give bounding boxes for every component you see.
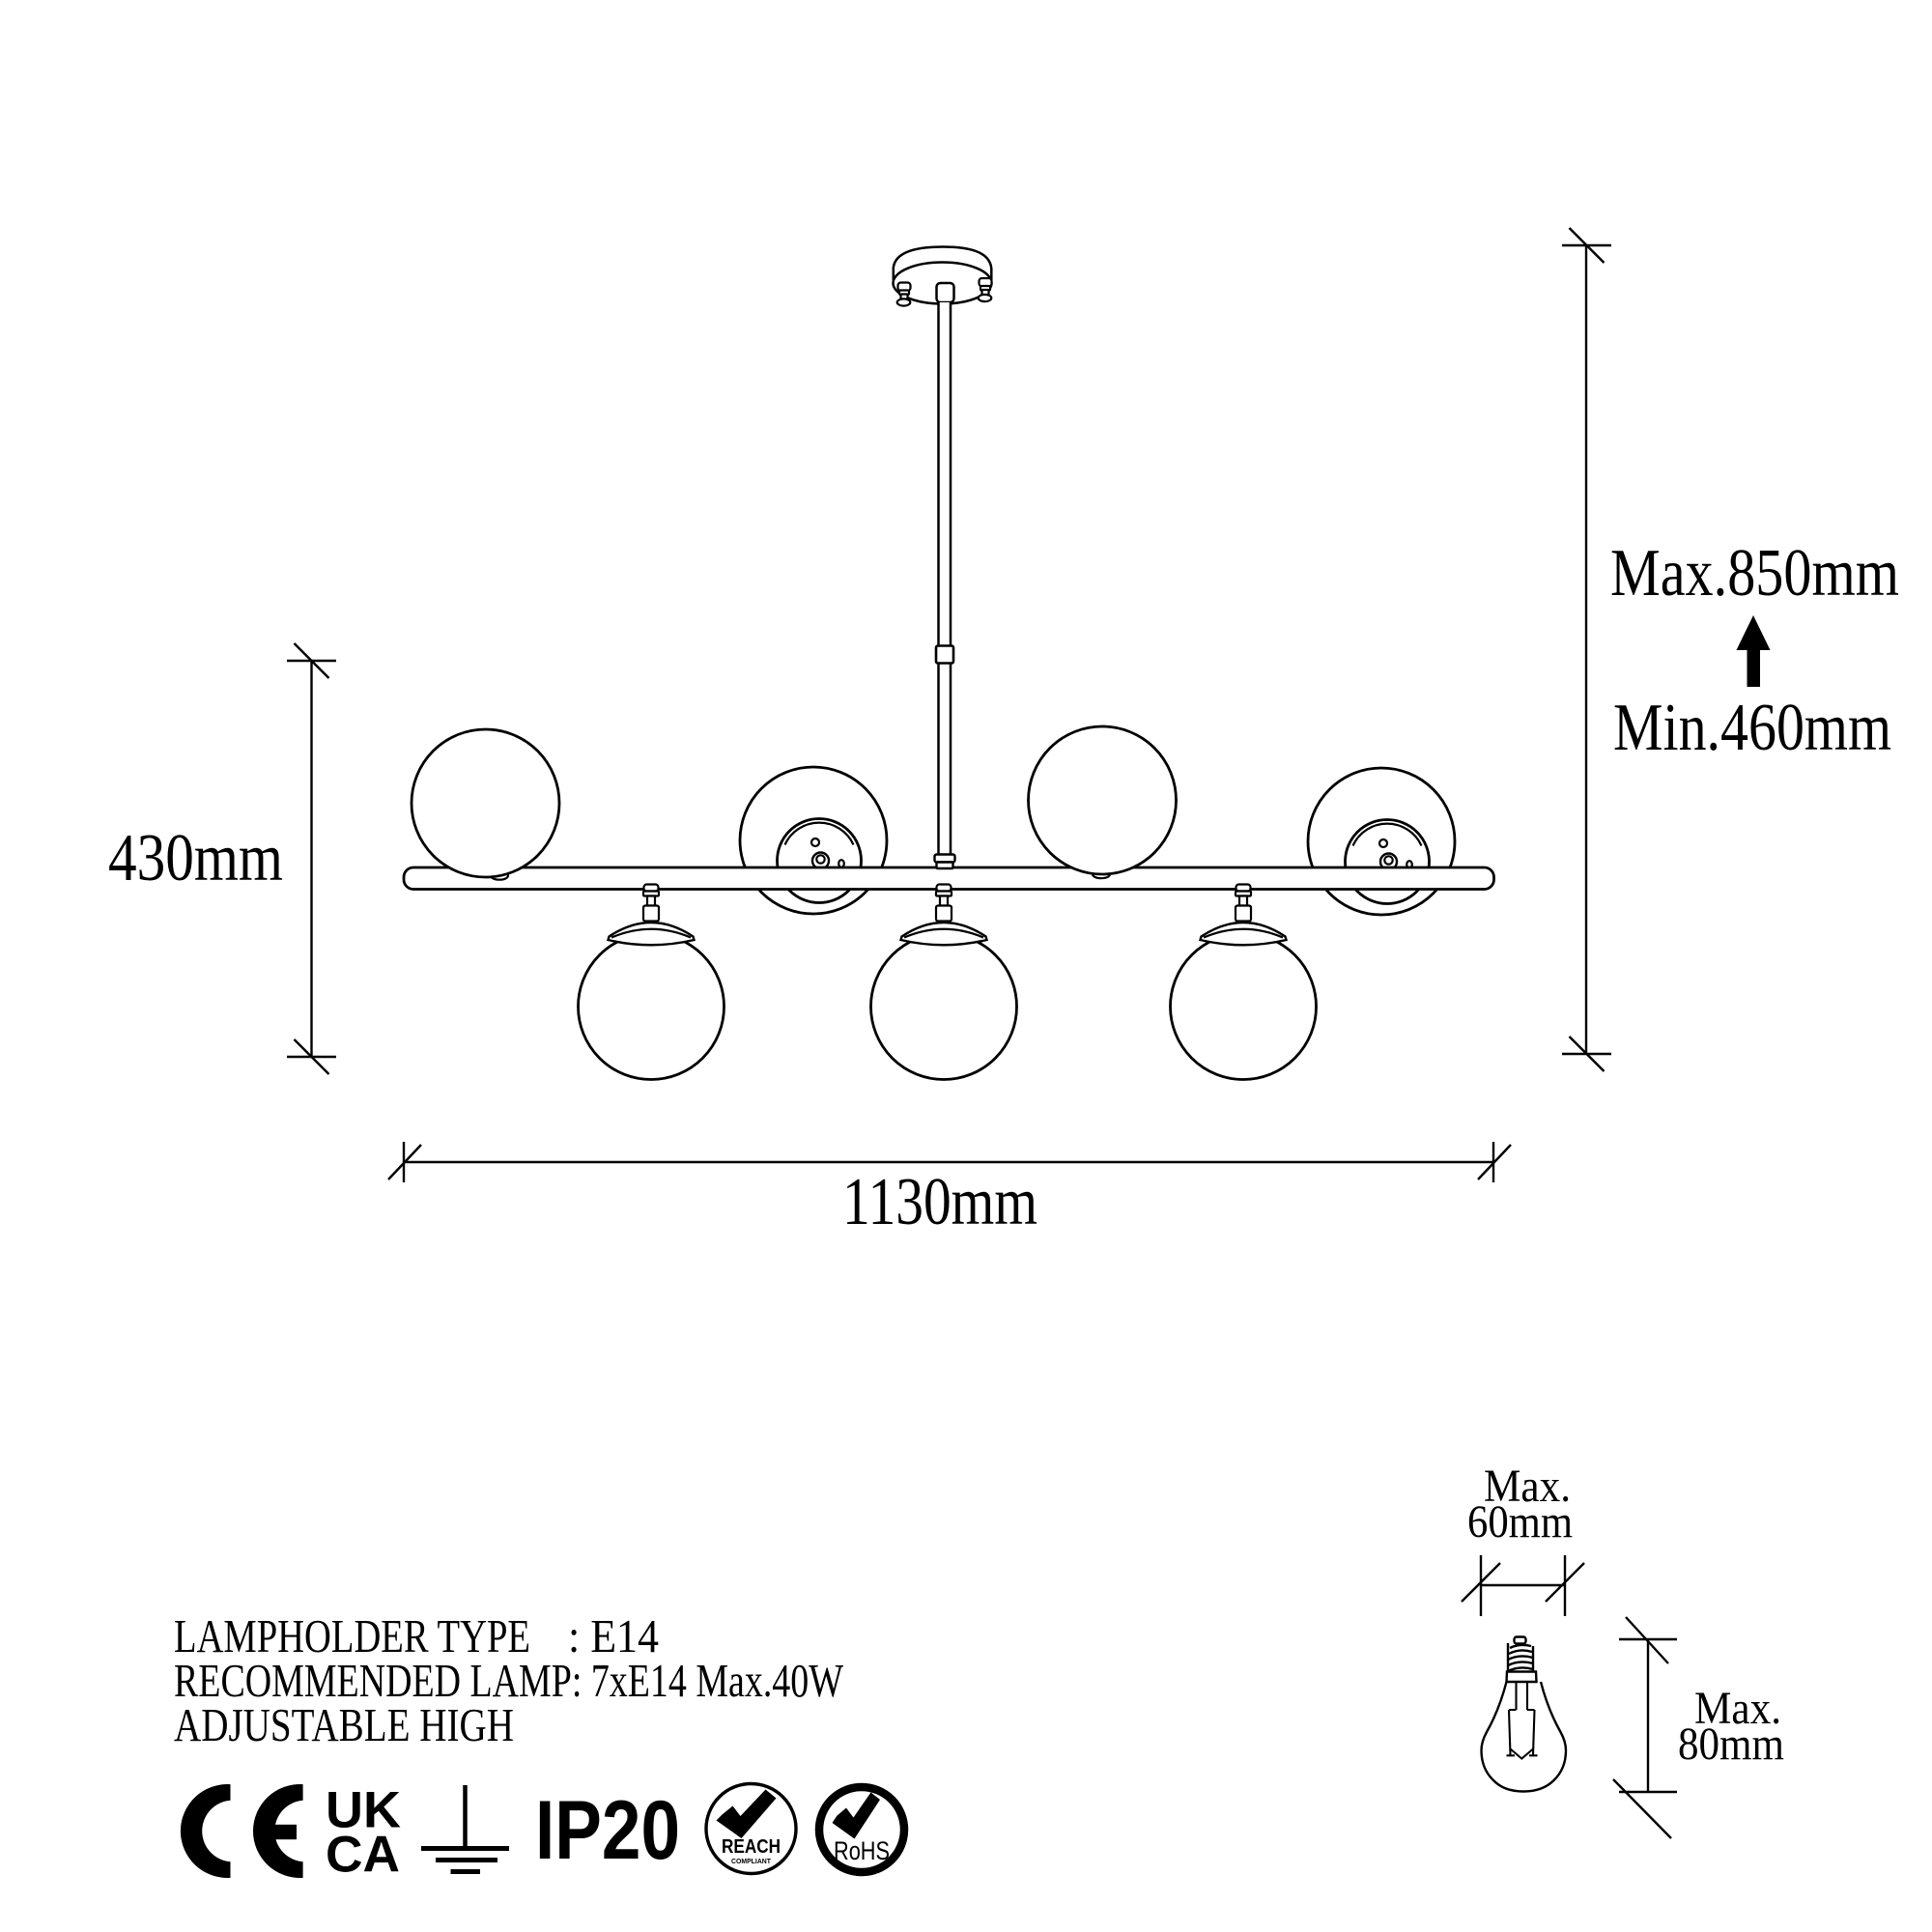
- svg-text:80mm: 80mm: [1678, 1719, 1784, 1770]
- svg-text:60mm: 60mm: [1467, 1496, 1573, 1548]
- svg-text:ADJUSTABLE HIGH: ADJUSTABLE HIGH: [174, 1698, 514, 1751]
- svg-text:IP20: IP20: [535, 1784, 680, 1877]
- svg-text:CA: CA: [326, 1827, 400, 1884]
- svg-text:Max.850mm: Max.850mm: [1610, 536, 1899, 611]
- svg-text:1130mm: 1130mm: [842, 1165, 1037, 1239]
- svg-text:Min.460mm: Min.460mm: [1613, 691, 1891, 765]
- svg-text:COMPLIANT: COMPLIANT: [731, 1857, 771, 1865]
- svg-text:430mm: 430mm: [108, 821, 283, 895]
- svg-text:REACH: REACH: [722, 1836, 781, 1858]
- svg-text:RoHS: RoHS: [834, 1836, 890, 1865]
